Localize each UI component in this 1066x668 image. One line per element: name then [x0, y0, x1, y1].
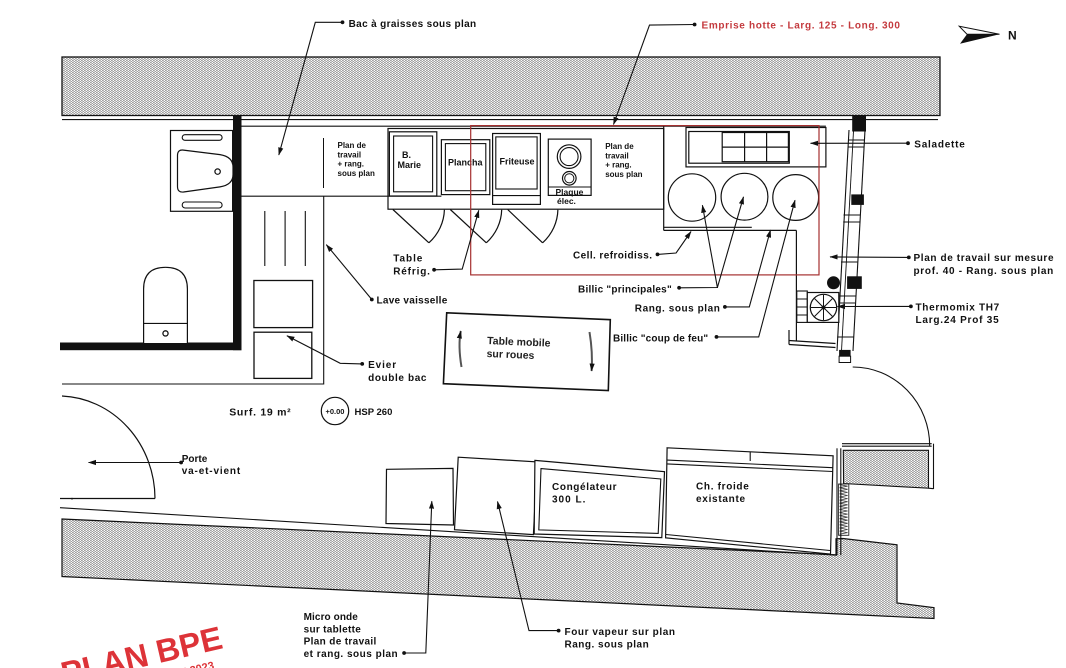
svg-text:sur tablette: sur tablette: [304, 624, 362, 635]
svg-text:+ rang.: + rang.: [605, 161, 631, 170]
svg-text:travail: travail: [338, 150, 362, 159]
svg-text:300 L.: 300 L.: [552, 495, 586, 506]
svg-text:Surf. 19 m²: Surf. 19 m²: [229, 406, 291, 418]
svg-text:Evier: Evier: [368, 360, 397, 371]
svg-text:élec.: élec.: [557, 196, 576, 206]
svg-text:prof. 40 - Rang. sous plan: prof. 40 - Rang. sous plan: [914, 266, 1054, 277]
svg-text:+0.00: +0.00: [326, 407, 345, 416]
svg-text:Marie: Marie: [398, 160, 422, 170]
svg-text:Porte: Porte: [182, 454, 208, 465]
svg-text:sous plan: sous plan: [338, 169, 375, 178]
svg-text:Cell. refroidiss.: Cell. refroidiss.: [573, 251, 652, 262]
svg-text:travail: travail: [605, 151, 629, 160]
svg-text:sur roues: sur roues: [486, 348, 534, 362]
svg-text:Plancha: Plancha: [448, 158, 484, 168]
svg-text:Table: Table: [393, 253, 423, 264]
svg-text:Plan de travail sur mesure: Plan de travail sur mesure: [914, 253, 1055, 264]
svg-text:double bac: double bac: [368, 373, 427, 384]
svg-text:Billic "coup de feu": Billic "coup de feu": [613, 333, 708, 344]
svg-text:Plan de: Plan de: [605, 142, 634, 151]
svg-text:Emprise hotte - Larg. 125 - Lo: Emprise hotte - Larg. 125 - Long. 300: [702, 21, 901, 32]
svg-text:Plan de travail: Plan de travail: [304, 637, 377, 648]
svg-text:Micro onde: Micro onde: [304, 612, 359, 623]
svg-text:existante: existante: [696, 494, 746, 505]
svg-text:va-et-vient: va-et-vient: [182, 466, 241, 477]
svg-text:Bac à graisses sous plan: Bac à graisses sous plan: [349, 19, 477, 30]
svg-text:Plan de: Plan de: [338, 141, 367, 150]
svg-text:N: N: [1008, 29, 1017, 43]
svg-text:Lave vaisselle: Lave vaisselle: [377, 296, 448, 307]
svg-text:Rang. sous plan: Rang. sous plan: [635, 303, 721, 314]
svg-text:Ch. froide: Ch. froide: [696, 482, 749, 493]
svg-text:sous plan: sous plan: [605, 170, 642, 179]
svg-text:HSP 260: HSP 260: [355, 407, 393, 418]
svg-text:Saladette: Saladette: [914, 140, 965, 151]
svg-text:B.: B.: [402, 150, 411, 160]
svg-text:et rang. sous plan: et rang. sous plan: [304, 649, 399, 660]
svg-text:Four vapeur sur plan: Four vapeur sur plan: [565, 627, 676, 638]
svg-text:Rang. sous plan: Rang. sous plan: [565, 639, 650, 650]
svg-text:+ rang.: + rang.: [338, 160, 364, 169]
svg-text:Friteuse: Friteuse: [500, 157, 535, 167]
svg-text:Réfrig.: Réfrig.: [393, 266, 431, 277]
svg-text:Larg.24 Prof 35: Larg.24 Prof 35: [916, 315, 1000, 326]
svg-text:Thermomix TH7: Thermomix TH7: [916, 303, 1000, 314]
svg-text:Billic "principales": Billic "principales": [578, 284, 672, 295]
svg-text:Congélateur: Congélateur: [552, 482, 617, 493]
